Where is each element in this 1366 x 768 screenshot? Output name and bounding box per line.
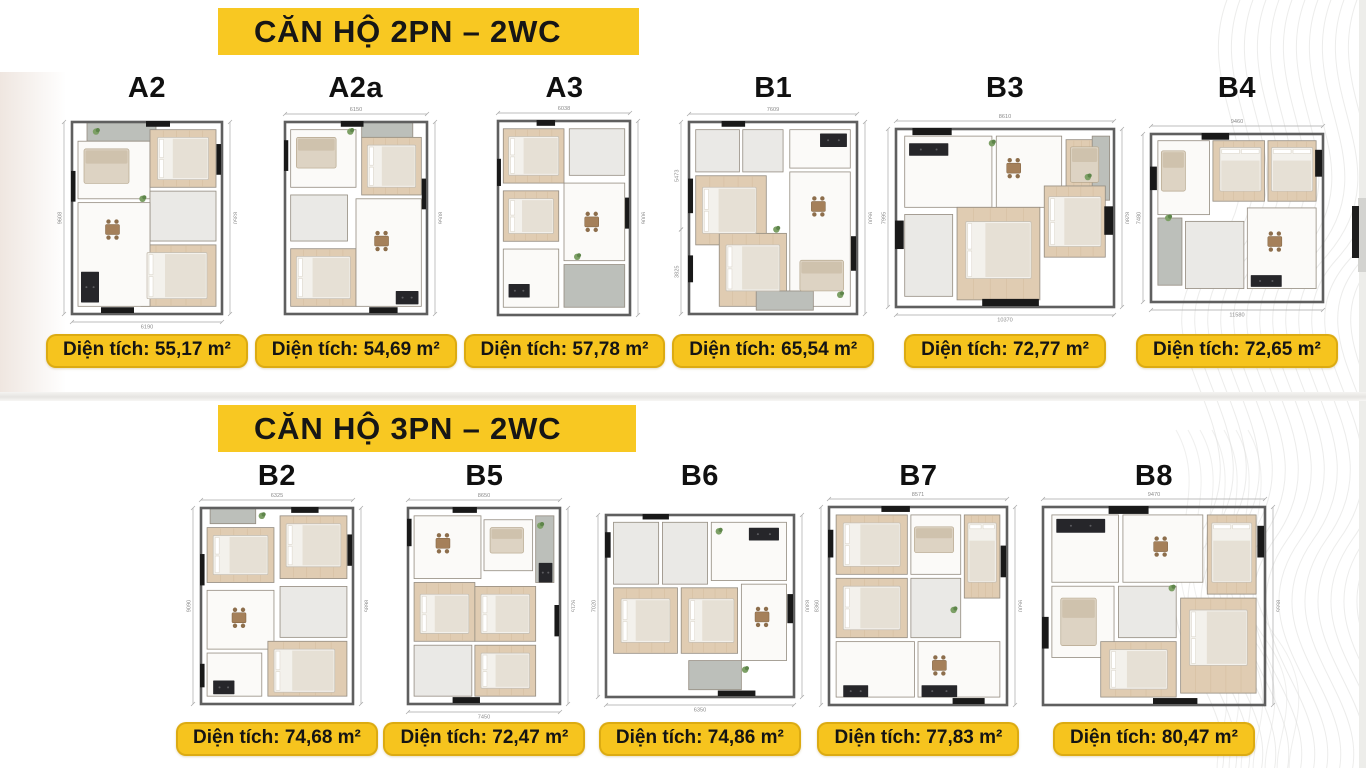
unit-card-B5: B5865074509215Diện tích: 72,47 m² xyxy=(383,462,585,756)
floor-plan-container: 635070208300 xyxy=(591,492,809,720)
wall-accent xyxy=(1315,150,1322,177)
wall-accent xyxy=(453,507,477,513)
dimension-label: 9460 xyxy=(1231,119,1243,125)
area-badge: Diện tích: 77,83 m² xyxy=(817,722,1019,756)
bed-icon xyxy=(481,653,530,688)
dimension-label: 8280 xyxy=(1124,212,1130,224)
wall-accent xyxy=(101,307,134,313)
room xyxy=(756,291,813,310)
dimension-label: 8685 xyxy=(362,600,368,612)
wall-accent xyxy=(718,691,756,696)
unit-card-B6: B6635070208300Diện tích: 74,86 m² xyxy=(591,462,809,756)
room xyxy=(1118,586,1176,637)
room xyxy=(1158,218,1182,285)
area-badge: Diện tích: 57,78 m² xyxy=(464,334,666,368)
area-badge: Diện tích: 72,47 m² xyxy=(383,722,585,756)
unit-type-label: B3 xyxy=(986,74,1024,104)
floor-plan-container: 94708555 xyxy=(1028,492,1280,720)
dimension-label: 8610 xyxy=(999,114,1011,120)
floor-plan-container: 619096088350 xyxy=(57,104,237,332)
kitchen-counter-icon xyxy=(820,134,847,147)
kitchen-counter-icon xyxy=(1056,519,1105,533)
unit-type-label: A2a xyxy=(328,74,383,104)
plant-icon xyxy=(259,512,266,519)
wall-accent xyxy=(216,144,221,175)
wall-accent xyxy=(953,698,985,704)
bed-icon xyxy=(966,222,1031,279)
dimension-label: 8056 xyxy=(436,212,442,224)
dimension-label: 9470 xyxy=(1148,492,1160,498)
dimension-label: 8360 xyxy=(815,600,821,612)
wall-accent xyxy=(555,605,560,636)
wall-accent xyxy=(71,171,76,202)
wall-accent xyxy=(1042,617,1049,649)
floor-plan-A3: 60389006 xyxy=(483,106,645,330)
bed-icon xyxy=(726,245,780,291)
wall-accent xyxy=(787,594,793,623)
bed-icon xyxy=(509,137,559,176)
room xyxy=(361,122,412,137)
area-badge: Diện tích: 72,65 m² xyxy=(1136,334,1338,368)
area-badge: Diện tích: 54,69 m² xyxy=(255,334,457,368)
unit-type-label: B2 xyxy=(258,462,296,492)
bed-icon xyxy=(1271,147,1312,191)
room xyxy=(696,130,740,172)
dimension-label: 11580 xyxy=(1229,313,1244,318)
wall-accent xyxy=(421,179,425,210)
dimension-label: 9500 xyxy=(867,212,873,224)
wall-accent xyxy=(605,532,611,557)
wall-accent xyxy=(913,128,952,135)
dimension-label: 7609 xyxy=(767,107,779,113)
unit-card-B4: B49460115807480Diện tích: 72,65 m² xyxy=(1136,74,1338,368)
wall-accent xyxy=(1257,526,1264,558)
wall-accent xyxy=(291,507,318,513)
bed-icon xyxy=(621,599,670,643)
unit-card-A2: A2619096088350Diện tích: 55,17 m² xyxy=(46,74,248,368)
bed-icon xyxy=(844,586,901,630)
dimension-label: 8350 xyxy=(231,212,237,224)
dimension-label: 6325 xyxy=(271,493,283,499)
bed-icon xyxy=(968,523,996,582)
dimension-label: 7480 xyxy=(1136,212,1142,224)
floor-plan-A2a: 61508056 xyxy=(270,107,442,329)
wall-accent xyxy=(347,534,352,565)
plant-icon xyxy=(742,666,749,673)
room xyxy=(613,522,658,584)
sofa-icon xyxy=(1061,598,1097,646)
dimension-label: 6190 xyxy=(141,325,153,330)
floor-plan-B5: 865074509215 xyxy=(393,493,575,719)
area-badge: Diện tích: 74,68 m² xyxy=(176,722,378,756)
dimension-label: 6038 xyxy=(558,106,570,112)
floor-plan-A2: 619096088350 xyxy=(57,107,237,329)
kitchen-counter-icon xyxy=(844,685,869,697)
bed-icon xyxy=(286,524,341,567)
area-badge: Diện tích: 65,54 m² xyxy=(672,334,874,368)
cutoff-floorplan-fragment xyxy=(1350,198,1366,272)
wall-accent xyxy=(200,554,205,585)
dimension-label: 8571 xyxy=(912,492,924,498)
room xyxy=(570,129,625,176)
unit-type-label: B1 xyxy=(754,74,792,104)
wall-accent xyxy=(851,236,856,271)
floor-plan-B8: 94708555 xyxy=(1028,492,1280,720)
sofa-icon xyxy=(915,527,954,553)
bed-icon xyxy=(421,594,470,633)
room xyxy=(356,199,421,307)
wall-accent xyxy=(688,255,693,282)
wall-accent xyxy=(1202,133,1230,140)
kitchen-counter-icon xyxy=(749,528,779,541)
section-divider xyxy=(0,392,1366,401)
bed-icon xyxy=(157,137,208,179)
dimension-label: 7020 xyxy=(591,600,597,612)
section-header-2pn-2wc: CĂN HỘ 2PN – 2WC xyxy=(218,8,639,55)
room xyxy=(689,661,742,690)
bed-icon xyxy=(274,649,335,692)
dimension-label: 7995 xyxy=(882,212,888,224)
dimension-label: 9090 xyxy=(186,600,192,612)
floor-plan-B1: 7609547338259500 xyxy=(674,107,872,329)
unit-card-A3: A360389006Diện tích: 57,78 m² xyxy=(464,74,666,368)
dimension-label: 5473 xyxy=(675,170,681,182)
unit-type-label: B7 xyxy=(899,462,937,492)
kitchen-counter-icon xyxy=(922,685,958,697)
kitchen-counter-icon xyxy=(213,680,234,694)
unit-card-B2: B2632590908685Diện tích: 74,68 m² xyxy=(176,462,378,756)
floor-plan-container: 61508056 xyxy=(270,104,442,332)
area-badge: Diện tích: 55,17 m² xyxy=(46,334,248,368)
dimension-label: 8300 xyxy=(803,600,809,612)
bed-icon xyxy=(844,523,901,567)
area-badge: Diện tích: 74,86 m² xyxy=(599,722,801,756)
dimension-label: 6150 xyxy=(349,107,361,113)
unit-type-label: A2 xyxy=(128,74,166,104)
dimension-label: 8555 xyxy=(1274,600,1280,612)
unit-row-2pn: A2619096088350Diện tích: 55,17 m²A2a6150… xyxy=(46,74,1338,368)
dimension-label: 7450 xyxy=(478,715,490,720)
unit-row-3pn: B2632590908685Diện tích: 74,68 m²B586507… xyxy=(176,462,1280,756)
unit-type-label: A3 xyxy=(545,74,583,104)
sofa-icon xyxy=(1161,151,1185,191)
unit-type-label: B4 xyxy=(1218,74,1256,104)
dimension-label: 3825 xyxy=(675,266,681,278)
floor-plan-B2: 632590908685 xyxy=(186,493,368,719)
sofa-icon xyxy=(800,260,844,291)
unit-type-label: B8 xyxy=(1135,462,1173,492)
wall-accent xyxy=(146,121,170,127)
room xyxy=(741,584,786,660)
wall-accent xyxy=(497,159,501,186)
bed-icon xyxy=(509,199,554,234)
room xyxy=(743,130,783,172)
bed-icon xyxy=(1220,147,1261,191)
area-badge: Diện tích: 80,47 m² xyxy=(1053,722,1255,756)
room xyxy=(905,214,953,296)
floor-plan-container: 632590908685 xyxy=(186,492,368,720)
wall-accent xyxy=(882,506,910,512)
floor-plan-container: 60389006 xyxy=(483,104,645,332)
bed-icon xyxy=(296,256,350,298)
kitchen-counter-icon xyxy=(539,563,553,583)
area-badge: Diện tích: 72,77 m² xyxy=(904,334,1106,368)
wall-accent xyxy=(1109,506,1149,514)
sofa-icon xyxy=(490,528,523,553)
room xyxy=(210,508,256,524)
floor-plan-container: 7609547338259500 xyxy=(674,104,872,332)
unit-type-label: B6 xyxy=(681,462,719,492)
dimension-label: 9608 xyxy=(57,212,63,224)
wall-accent xyxy=(453,697,480,703)
floor-plan-B3: 86101037079958280 xyxy=(881,114,1129,322)
kitchen-counter-icon xyxy=(509,284,530,298)
bed-icon xyxy=(1110,650,1168,690)
unit-card-B3: B386101037079958280Diện tích: 72,77 m² xyxy=(881,74,1129,368)
plant-icon xyxy=(773,226,780,233)
dimension-label: 9215 xyxy=(570,600,576,612)
room xyxy=(280,586,347,637)
wall-accent xyxy=(982,299,1039,306)
room xyxy=(290,195,347,241)
right-edge-strip xyxy=(1359,0,1366,768)
wall-accent xyxy=(626,198,630,229)
dimension-label: 6350 xyxy=(694,708,706,713)
wall-accent xyxy=(1104,206,1113,234)
sofa-icon xyxy=(1070,147,1098,183)
wall-accent xyxy=(369,307,397,313)
wall-accent xyxy=(537,120,555,126)
bed-icon xyxy=(213,535,268,574)
room xyxy=(662,522,707,584)
unit-card-A2a: A2a61508056Diện tích: 54,69 m² xyxy=(255,74,457,368)
sofa-icon xyxy=(84,149,129,184)
floor-plan-B4: 9460115807480 xyxy=(1136,119,1338,317)
wall-accent xyxy=(1001,546,1006,578)
kitchen-counter-icon xyxy=(909,143,948,155)
wall-accent xyxy=(722,121,746,127)
section-header-3pn-2wc: CĂN HỘ 3PN – 2WC xyxy=(218,405,636,452)
floor-plan-container: 857183609500 xyxy=(814,492,1022,720)
unit-card-B7: B7857183609500Diện tích: 77,83 m² xyxy=(814,462,1022,756)
room xyxy=(564,265,625,308)
floor-plan-container: 865074509215 xyxy=(393,492,575,720)
floor-plan-container: 9460115807480 xyxy=(1136,104,1338,332)
wall-accent xyxy=(407,519,412,546)
wall-accent xyxy=(200,664,205,688)
wall-accent xyxy=(642,514,668,519)
bed-icon xyxy=(147,253,207,299)
unit-card-B1: B17609547338259500Diện tích: 65,54 m² xyxy=(672,74,874,368)
wall-accent xyxy=(1153,698,1197,704)
kitchen-counter-icon xyxy=(1251,275,1282,287)
floor-plan-B7: 857183609500 xyxy=(814,492,1022,720)
bed-icon xyxy=(689,599,734,643)
wall-accent xyxy=(895,221,904,249)
kitchen-counter-icon xyxy=(81,272,99,303)
bed-icon xyxy=(1212,523,1252,582)
floor-plan-container: 86101037079958280 xyxy=(881,104,1129,332)
room xyxy=(150,191,216,241)
unit-card-B8: B894708555Diện tích: 80,47 m² xyxy=(1028,462,1280,756)
room xyxy=(414,645,472,696)
dimension-label: 9500 xyxy=(1017,600,1023,612)
unit-type-label: B5 xyxy=(465,462,503,492)
room xyxy=(1185,221,1243,288)
floor-plan-B6: 635070208300 xyxy=(591,500,809,712)
wall-accent xyxy=(284,140,288,171)
room xyxy=(504,249,559,307)
bed-icon xyxy=(481,594,530,633)
bed-icon xyxy=(367,145,415,187)
bed-icon xyxy=(703,187,757,233)
bed-icon xyxy=(1189,610,1247,665)
dimension-label: 9006 xyxy=(640,212,646,224)
kitchen-counter-icon xyxy=(395,291,418,304)
sofa-icon xyxy=(296,137,336,168)
wall-accent xyxy=(1150,167,1157,191)
dimension-label: 10370 xyxy=(997,318,1013,323)
dimension-label: 8650 xyxy=(478,493,490,499)
wall-accent xyxy=(688,179,693,214)
wall-accent xyxy=(828,530,833,558)
wall-accent xyxy=(341,121,364,127)
bed-icon xyxy=(1049,197,1101,247)
